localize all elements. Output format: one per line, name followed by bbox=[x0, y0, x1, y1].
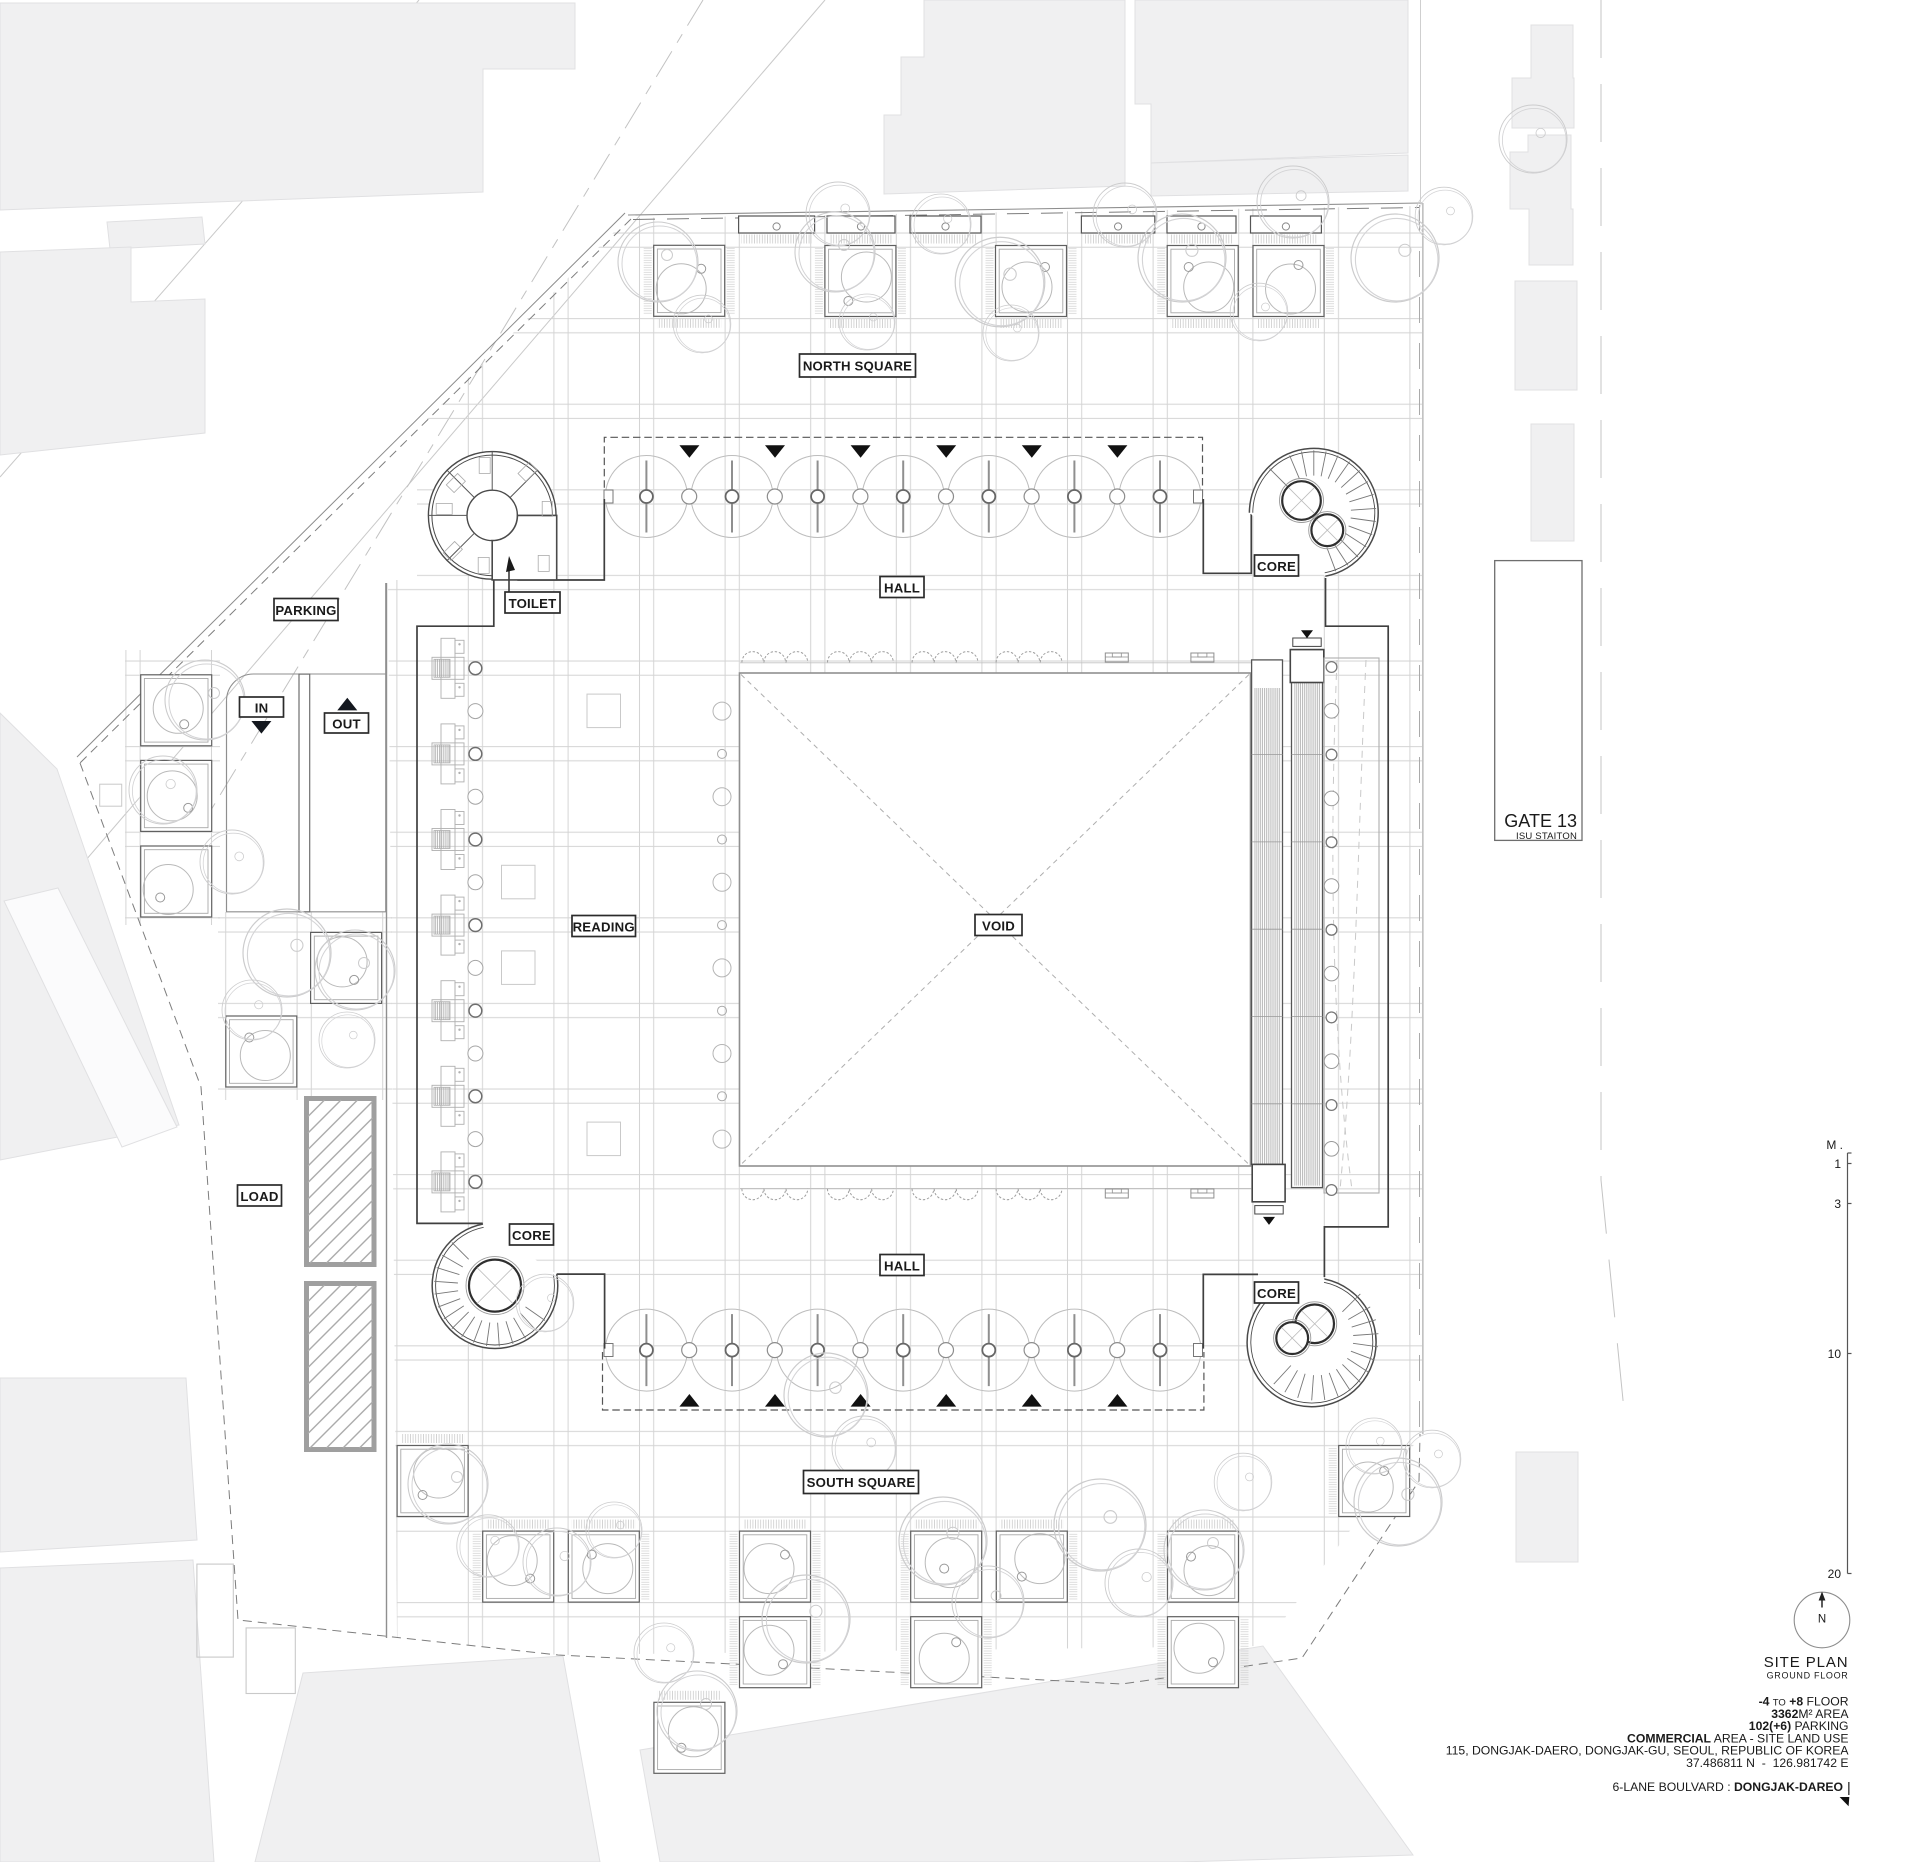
svg-text:OUT: OUT bbox=[332, 717, 360, 732]
svg-text:20: 20 bbox=[1828, 1567, 1842, 1581]
svg-text:HALL: HALL bbox=[884, 581, 920, 596]
svg-text:1: 1 bbox=[1834, 1157, 1841, 1171]
svg-text:TOILET: TOILET bbox=[509, 596, 557, 611]
svg-text:PARKING: PARKING bbox=[275, 603, 336, 618]
svg-text:N: N bbox=[1818, 1614, 1826, 1626]
svg-text:CORE: CORE bbox=[1257, 1286, 1296, 1301]
svg-text:SOUTH SQUARE: SOUTH SQUARE bbox=[807, 1475, 916, 1490]
svg-text:3: 3 bbox=[1834, 1197, 1841, 1211]
svg-text:10: 10 bbox=[1828, 1347, 1842, 1361]
svg-text:37.486811 N - 126.981742 E: 37.486811 N - 126.981742 E bbox=[1686, 1756, 1848, 1770]
svg-text:LOAD: LOAD bbox=[240, 1189, 278, 1204]
svg-text:NORTH SQUARE: NORTH SQUARE bbox=[803, 359, 912, 374]
svg-text:READING: READING bbox=[573, 920, 635, 935]
svg-text:HALL: HALL bbox=[884, 1259, 920, 1274]
svg-text:CORE: CORE bbox=[1257, 559, 1296, 574]
svg-text:CORE: CORE bbox=[512, 1228, 551, 1243]
svg-text:M .: M . bbox=[1826, 1138, 1843, 1152]
svg-text:ISU STAITON: ISU STAITON bbox=[1516, 831, 1577, 842]
svg-text:6-LANE BOULVARD : DONGJAK-DARE: 6-LANE BOULVARD : DONGJAK-DAREO bbox=[1613, 1780, 1843, 1794]
svg-text:GATE 13: GATE 13 bbox=[1504, 811, 1577, 831]
svg-text:IN: IN bbox=[255, 701, 269, 716]
svg-text:GROUND FLOOR: GROUND FLOOR bbox=[1767, 1671, 1849, 1681]
svg-text:SITE PLAN: SITE PLAN bbox=[1764, 1654, 1849, 1671]
svg-text:VOID: VOID bbox=[982, 919, 1015, 934]
